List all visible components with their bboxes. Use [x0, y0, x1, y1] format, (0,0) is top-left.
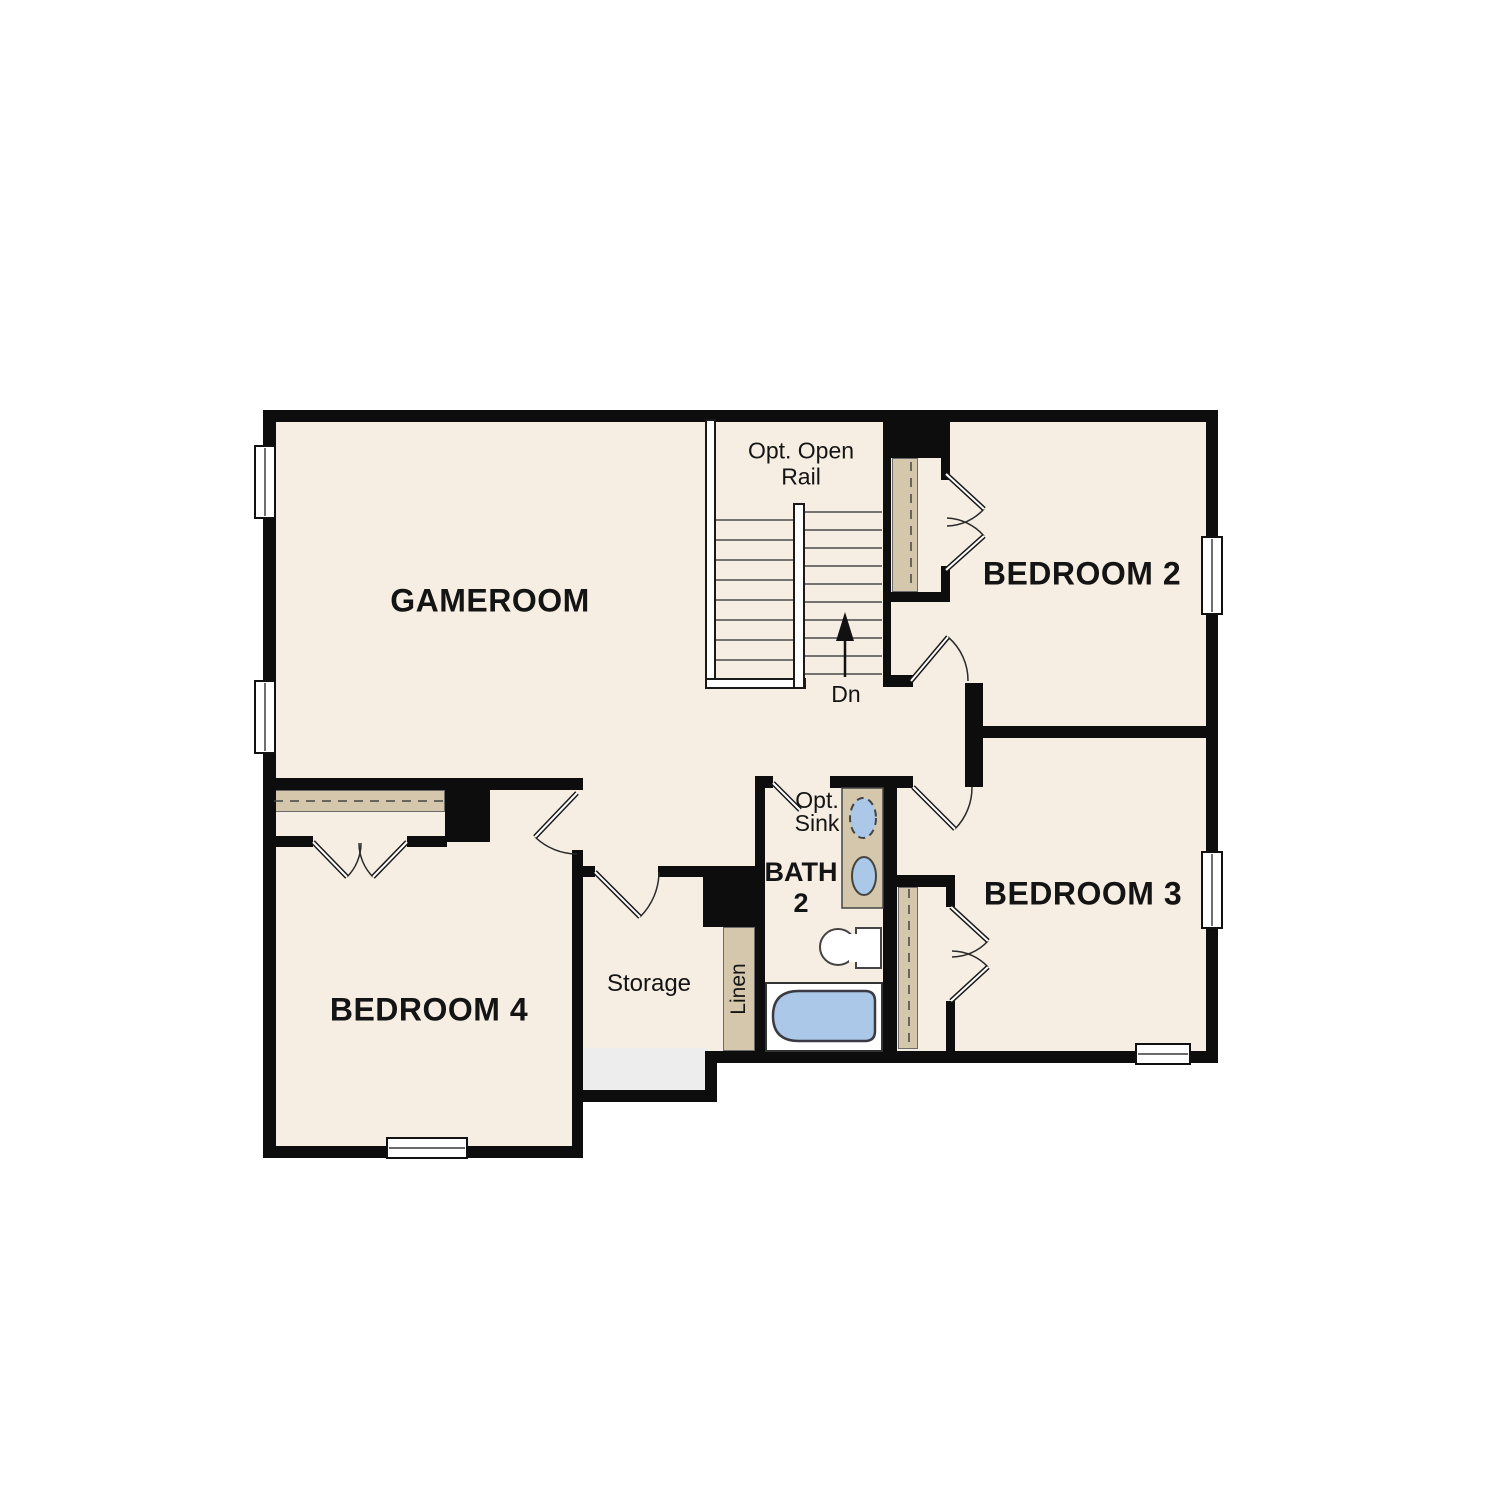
- sink: [852, 857, 876, 895]
- closet-doors-bedroom-3: [951, 907, 988, 1001]
- bath-2-label-line2: 2: [765, 888, 838, 919]
- window-bedroom-3-right: [1202, 852, 1222, 928]
- window-bedroom-4-bottom: [387, 1138, 467, 1158]
- door-bedroom-4: [535, 793, 577, 854]
- door-storage: [595, 872, 659, 917]
- bedroom-2-label: BEDROOM 2: [983, 556, 1181, 593]
- optional-open-rail-line2: Rail: [748, 464, 854, 490]
- door-bedroom-2: [911, 637, 968, 681]
- window-gameroom-left-upper: [255, 446, 275, 518]
- plan-linework: [0, 0, 1500, 1500]
- optional-sink-label: Opt. Sink: [795, 789, 840, 835]
- optional-open-rail-label: Opt. Open Rail: [748, 438, 854, 491]
- optional-sink-line2: Sink: [795, 812, 840, 835]
- floor-plan: GAMEROOM BEDROOM 2 BEDROOM 3 BEDROOM 4 B…: [0, 0, 1500, 1500]
- door-bedroom-3: [913, 787, 972, 829]
- bath-2-label-line1: BATH: [765, 857, 838, 888]
- optional-open-rail-line1: Opt. Open: [748, 438, 854, 464]
- vanity: [842, 788, 883, 908]
- stair-down-arrow: [836, 612, 854, 677]
- bath-2-label: BATH 2: [765, 857, 838, 919]
- bathtub: [766, 983, 882, 1051]
- linen-label: Linen: [727, 963, 751, 1014]
- stair-rail-center: [794, 504, 804, 688]
- window-bedroom-3-bottom: [1136, 1044, 1190, 1064]
- window-bedroom-2-right: [1202, 537, 1222, 614]
- bedroom-4-label: BEDROOM 4: [330, 992, 528, 1029]
- closet-doors-bedroom-4: [313, 842, 407, 877]
- window-gameroom-left-lower: [255, 681, 275, 753]
- bedroom-3-label: BEDROOM 3: [984, 876, 1182, 913]
- optional-sink-line1: Opt.: [795, 789, 840, 812]
- gameroom-label: GAMEROOM: [390, 583, 590, 620]
- stair-rail-left: [706, 420, 715, 688]
- toilet: [820, 928, 881, 968]
- stairs-down-label: Dn: [831, 681, 860, 707]
- storage-label: Storage: [607, 970, 691, 998]
- stair-rail-bottom: [706, 679, 805, 688]
- optional-sink: [850, 798, 876, 838]
- closet-doors-bedroom-2: [946, 474, 984, 570]
